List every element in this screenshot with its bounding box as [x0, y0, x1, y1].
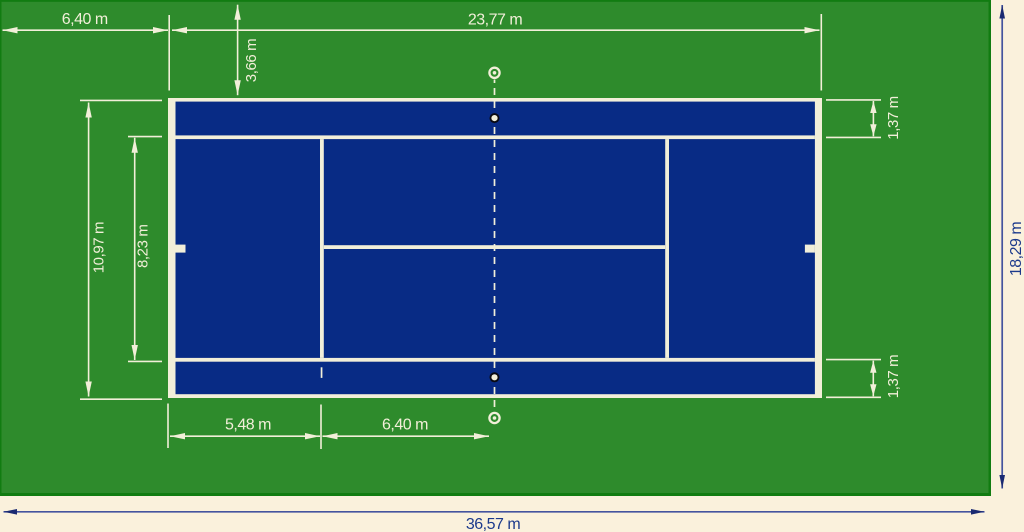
- svg-text:6,40 m: 6,40 m: [62, 11, 108, 28]
- svg-text:8,23 m: 8,23 m: [135, 225, 152, 268]
- svg-text:3,66 m: 3,66 m: [243, 39, 260, 82]
- svg-text:5,48 m: 5,48 m: [225, 417, 271, 434]
- svg-text:23,77 m: 23,77 m: [468, 11, 522, 28]
- svg-text:1,37 m: 1,37 m: [885, 96, 902, 139]
- svg-text:10,97 m: 10,97 m: [91, 222, 108, 273]
- svg-text:1,37 m: 1,37 m: [885, 355, 902, 398]
- svg-text:36,57 m: 36,57 m: [466, 516, 520, 532]
- svg-text:18,29 m: 18,29 m: [1008, 222, 1024, 276]
- svg-text:6,40 m: 6,40 m: [382, 417, 428, 434]
